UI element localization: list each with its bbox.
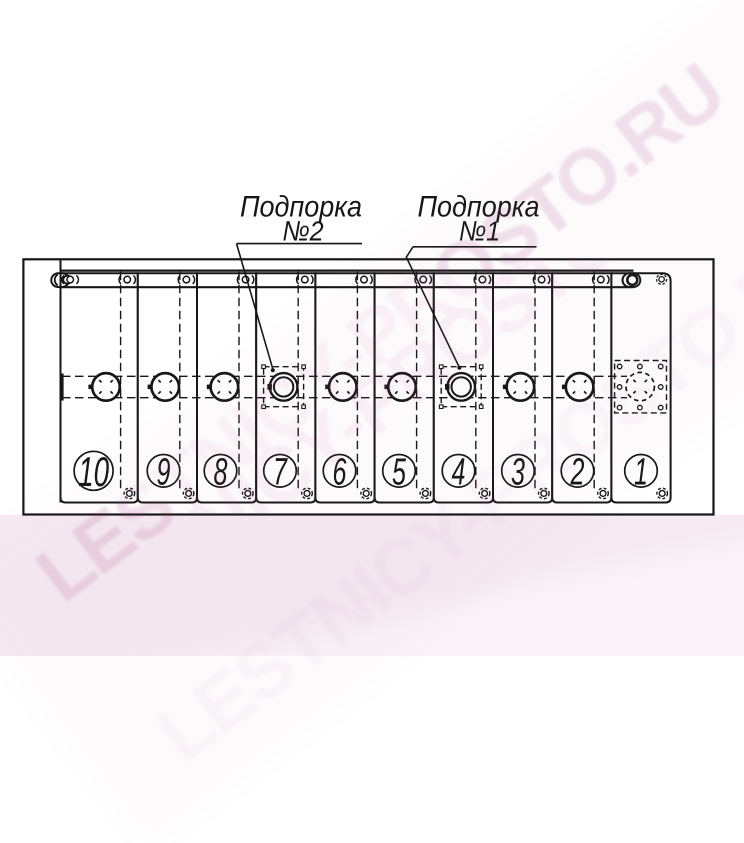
svg-text:№2: №2 xyxy=(282,215,323,247)
